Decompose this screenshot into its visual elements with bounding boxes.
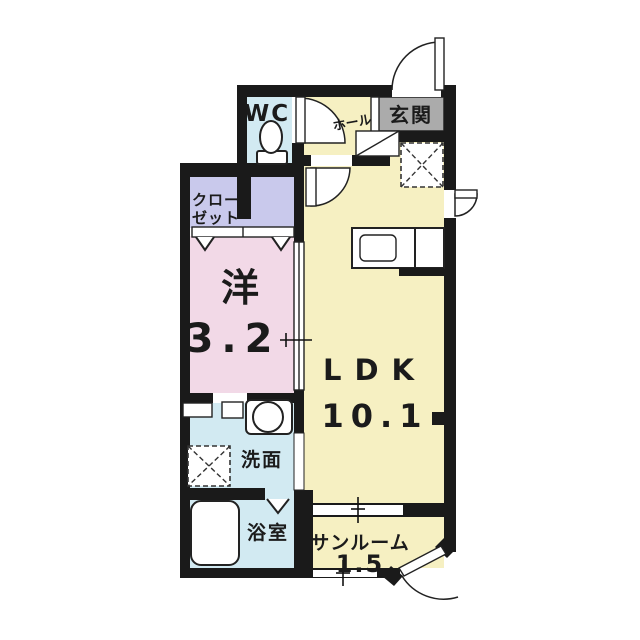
kitchen-door-leaf bbox=[455, 190, 477, 198]
entrance-label: 玄関 bbox=[389, 103, 433, 127]
ldk-door-leaf bbox=[306, 168, 316, 206]
washbasin-sink-icon bbox=[253, 402, 283, 432]
wall-washroom-right bbox=[294, 393, 304, 433]
ldk-doorway-gap bbox=[311, 155, 352, 166]
western-room-label: 洋 bbox=[221, 266, 259, 310]
wall-left bbox=[180, 163, 190, 578]
washroom-door-leaf bbox=[222, 402, 243, 418]
closet-label-line2: ゼット bbox=[192, 209, 240, 227]
floor-plan: WC ホール 玄関 クロー ゼット 洋 3.2 LDK 10.1 洗面 浴室 サ… bbox=[0, 0, 640, 640]
refrigerator-space-icon bbox=[401, 143, 443, 187]
entrance-doorway-gap bbox=[392, 85, 441, 97]
entrance-door-arc bbox=[392, 42, 440, 90]
wc-door-leaf bbox=[296, 97, 305, 143]
floor-plan-canvas: WC ホール 玄関 クロー ゼット 洋 3.2 LDK 10.1 洗面 浴室 サ… bbox=[0, 0, 640, 640]
ldk-size: 10.1 bbox=[322, 397, 429, 435]
washer-space-icon bbox=[188, 446, 230, 486]
washroom-cabinet bbox=[183, 403, 212, 417]
wall-hall-ldk-a bbox=[292, 155, 311, 166]
ldk-label: LDK bbox=[323, 353, 427, 387]
wall-right-stub bbox=[432, 412, 444, 425]
closet-label-line1: クロー bbox=[192, 191, 240, 209]
wall-washroom-bathroom bbox=[180, 488, 265, 500]
kitchen-doorway-gap bbox=[444, 190, 456, 218]
sunroom-size: 1.5 bbox=[336, 550, 385, 578]
bathtub-icon bbox=[191, 501, 239, 565]
washroom-label: 洗面 bbox=[241, 448, 283, 471]
wc-label: WC bbox=[244, 101, 290, 127]
kitchen-counter-edge bbox=[399, 268, 444, 276]
washroom-doorway-gap bbox=[294, 433, 304, 490]
wall-western-washroom-a bbox=[180, 393, 213, 403]
bathroom-label: 浴室 bbox=[247, 521, 289, 544]
wall-right bbox=[444, 85, 456, 552]
western-room-size: 3.2 bbox=[186, 316, 281, 362]
sunroom-door-arc bbox=[402, 576, 458, 599]
entrance-door-leaf bbox=[435, 38, 444, 90]
western-room-floor bbox=[190, 236, 294, 393]
kitchen-sink-icon bbox=[360, 235, 396, 261]
